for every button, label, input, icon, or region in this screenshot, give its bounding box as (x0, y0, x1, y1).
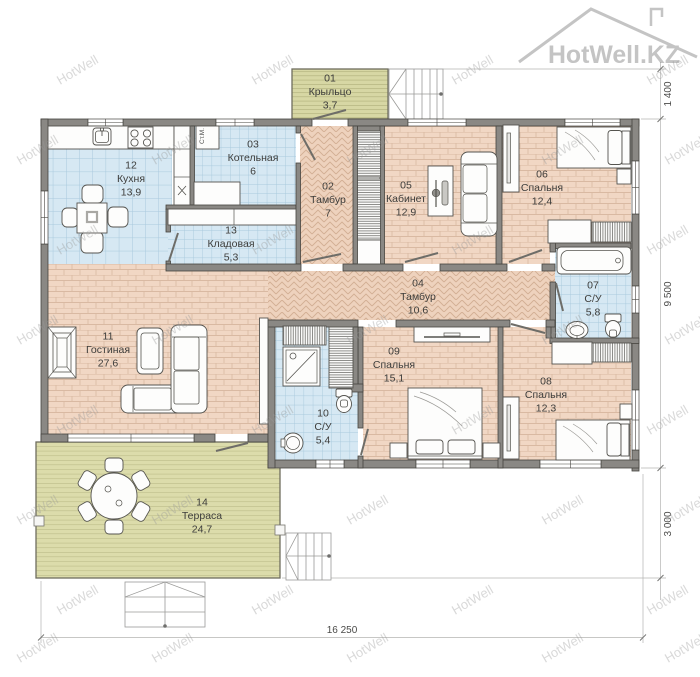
svg-text:04: 04 (412, 278, 424, 290)
svg-text:08: 08 (540, 376, 552, 388)
svg-text:Тамбур: Тамбур (310, 194, 346, 206)
svg-text:15,1: 15,1 (384, 373, 405, 385)
svg-text:Спальня: Спальня (525, 389, 567, 401)
svg-text:11: 11 (103, 331, 114, 343)
svg-text:12: 12 (125, 160, 137, 172)
svg-text:Ст.М.: Ст.М. (199, 128, 206, 144)
svg-text:Гостиная: Гостиная (86, 344, 130, 356)
svg-text:С/У: С/У (584, 293, 602, 305)
svg-text:01: 01 (324, 73, 336, 85)
svg-text:12,3: 12,3 (536, 403, 557, 415)
svg-text:Спальня: Спальня (521, 182, 563, 194)
svg-text:Спальня: Спальня (373, 359, 415, 371)
svg-text:12,4: 12,4 (532, 196, 553, 208)
svg-text:9 500: 9 500 (663, 281, 674, 306)
svg-text:05: 05 (400, 180, 412, 192)
svg-text:14: 14 (196, 497, 208, 509)
svg-text:02: 02 (322, 181, 334, 193)
svg-text:03: 03 (247, 139, 259, 151)
svg-text:Кладовая: Кладовая (207, 238, 254, 250)
svg-text:5,8: 5,8 (586, 307, 601, 319)
svg-text:С/У: С/У (314, 421, 332, 433)
svg-text:12,9: 12,9 (396, 207, 417, 219)
svg-text:13,9: 13,9 (121, 187, 142, 199)
svg-text:24,7: 24,7 (192, 524, 213, 536)
svg-text:3,7: 3,7 (323, 100, 338, 112)
svg-text:10,6: 10,6 (408, 305, 429, 317)
svg-text:27,6: 27,6 (98, 358, 119, 370)
svg-text:16 250: 16 250 (327, 625, 358, 636)
svg-text:HotWell.KZ: HotWell.KZ (548, 41, 680, 69)
svg-text:13: 13 (225, 225, 237, 237)
svg-text:5,4: 5,4 (316, 435, 331, 447)
svg-text:Тамбур: Тамбур (400, 291, 436, 303)
svg-text:06: 06 (536, 169, 548, 181)
svg-text:Терраса: Терраса (182, 510, 222, 522)
svg-text:1 400: 1 400 (663, 81, 674, 106)
svg-text:07: 07 (587, 280, 599, 292)
svg-text:6: 6 (250, 166, 256, 178)
svg-text:Кухня: Кухня (117, 173, 145, 185)
svg-text:Котельная: Котельная (228, 152, 279, 164)
svg-text:Крыльцо: Крыльцо (309, 86, 352, 98)
svg-text:09: 09 (388, 346, 400, 358)
svg-text:5,3: 5,3 (224, 252, 239, 264)
svg-text:Кабинет: Кабинет (386, 193, 426, 205)
svg-text:10: 10 (317, 408, 329, 420)
svg-text:7: 7 (325, 208, 331, 220)
